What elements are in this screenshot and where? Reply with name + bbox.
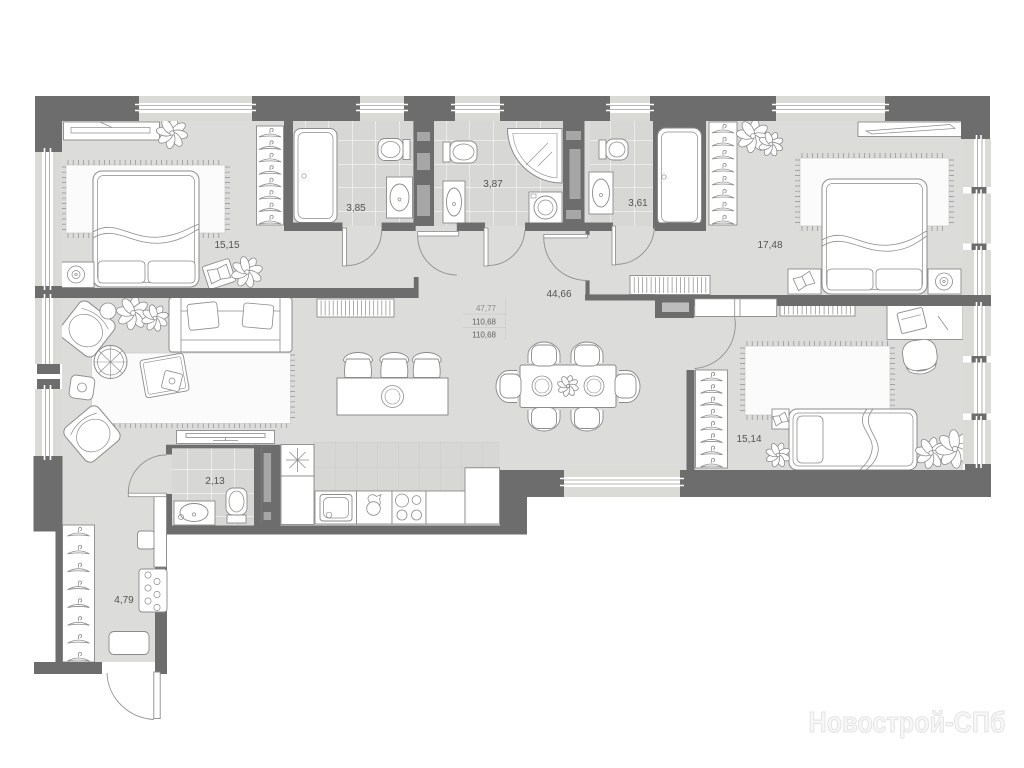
svg-text:3,87: 3,87 [483, 179, 503, 190]
svg-text:47,77: 47,77 [476, 304, 497, 313]
svg-text:2,13: 2,13 [205, 476, 225, 487]
svg-text:3,85: 3,85 [346, 203, 366, 214]
svg-text:Новострой-СПб: Новострой-СПб [809, 707, 1006, 739]
svg-text:110,68: 110,68 [472, 318, 496, 327]
svg-text:44,66: 44,66 [546, 289, 571, 300]
svg-text:4,79: 4,79 [114, 595, 134, 606]
svg-text:15,15: 15,15 [214, 240, 239, 251]
svg-text:3,61: 3,61 [628, 198, 648, 209]
svg-text:110,68: 110,68 [472, 331, 496, 340]
svg-text:15,14: 15,14 [736, 434, 761, 445]
svg-text:17,48: 17,48 [757, 240, 782, 251]
